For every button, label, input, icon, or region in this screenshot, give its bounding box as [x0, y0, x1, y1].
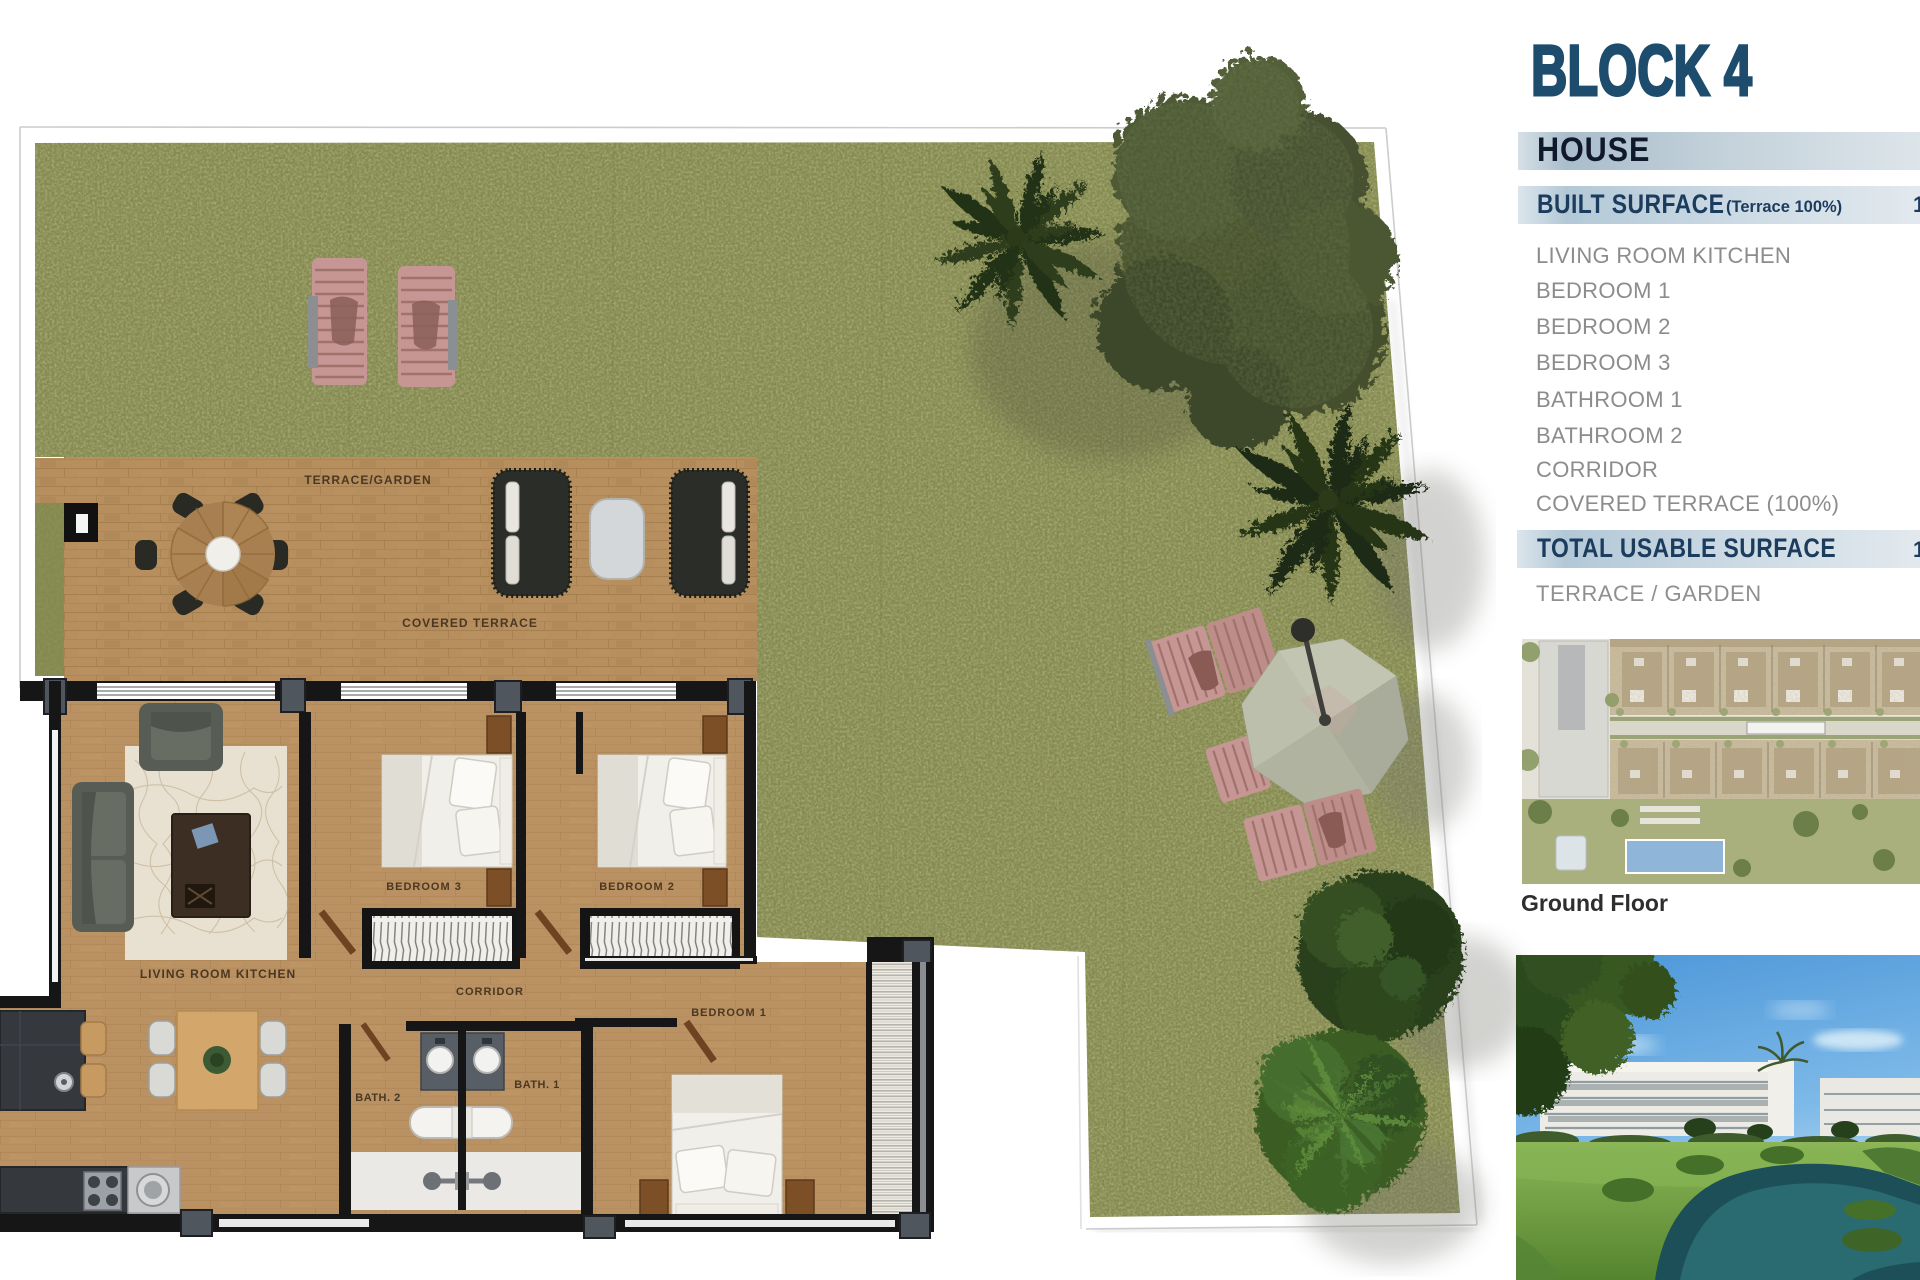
- svg-text:BATHROOM 2: BATHROOM 2: [1536, 423, 1683, 448]
- svg-text:BEDROOM 1: BEDROOM 1: [691, 1007, 767, 1019]
- svg-text:CORRIDOR: CORRIDOR: [1536, 457, 1658, 482]
- svg-text:BEDROOM 2: BEDROOM 2: [599, 881, 675, 893]
- svg-text:CORRIDOR: CORRIDOR: [456, 986, 524, 998]
- svg-text:BEDROOM 3: BEDROOM 3: [1536, 350, 1671, 375]
- svg-text:LIVING ROOM KITCHEN: LIVING ROOM KITCHEN: [1536, 243, 1791, 268]
- svg-text:BUILT SURFACE: BUILT SURFACE: [1537, 189, 1724, 219]
- svg-text:LIVING ROOM KITCHEN: LIVING ROOM KITCHEN: [140, 967, 296, 981]
- svg-text:TERRACE/GARDEN: TERRACE/GARDEN: [304, 473, 431, 487]
- svg-text:BATH. 1: BATH. 1: [514, 1079, 559, 1091]
- svg-text:COVERED TERRACE (100%): COVERED TERRACE (100%): [1536, 491, 1839, 516]
- svg-text:TOTAL USABLE SURFACE: TOTAL USABLE SURFACE: [1537, 533, 1836, 563]
- svg-text:11: 11: [1913, 537, 1920, 562]
- svg-text:BATH. 2: BATH. 2: [355, 1092, 400, 1104]
- svg-text:HOUSE: HOUSE: [1537, 131, 1650, 169]
- svg-text:10: 10: [1913, 192, 1920, 217]
- svg-text:BATHROOM 1: BATHROOM 1: [1536, 387, 1683, 412]
- svg-text:BLOCK 4: BLOCK 4: [1531, 31, 1752, 111]
- svg-text:TERRACE / GARDEN: TERRACE / GARDEN: [1536, 581, 1762, 606]
- svg-text:COVERED TERRACE: COVERED TERRACE: [402, 616, 538, 630]
- svg-text:BEDROOM 2: BEDROOM 2: [1536, 314, 1671, 339]
- svg-text:BEDROOM 1: BEDROOM 1: [1536, 278, 1671, 303]
- svg-text:(Terrace 100%): (Terrace 100%): [1726, 198, 1842, 216]
- svg-text:Ground Floor: Ground Floor: [1521, 890, 1668, 916]
- svg-text:BEDROOM 3: BEDROOM 3: [386, 881, 462, 893]
